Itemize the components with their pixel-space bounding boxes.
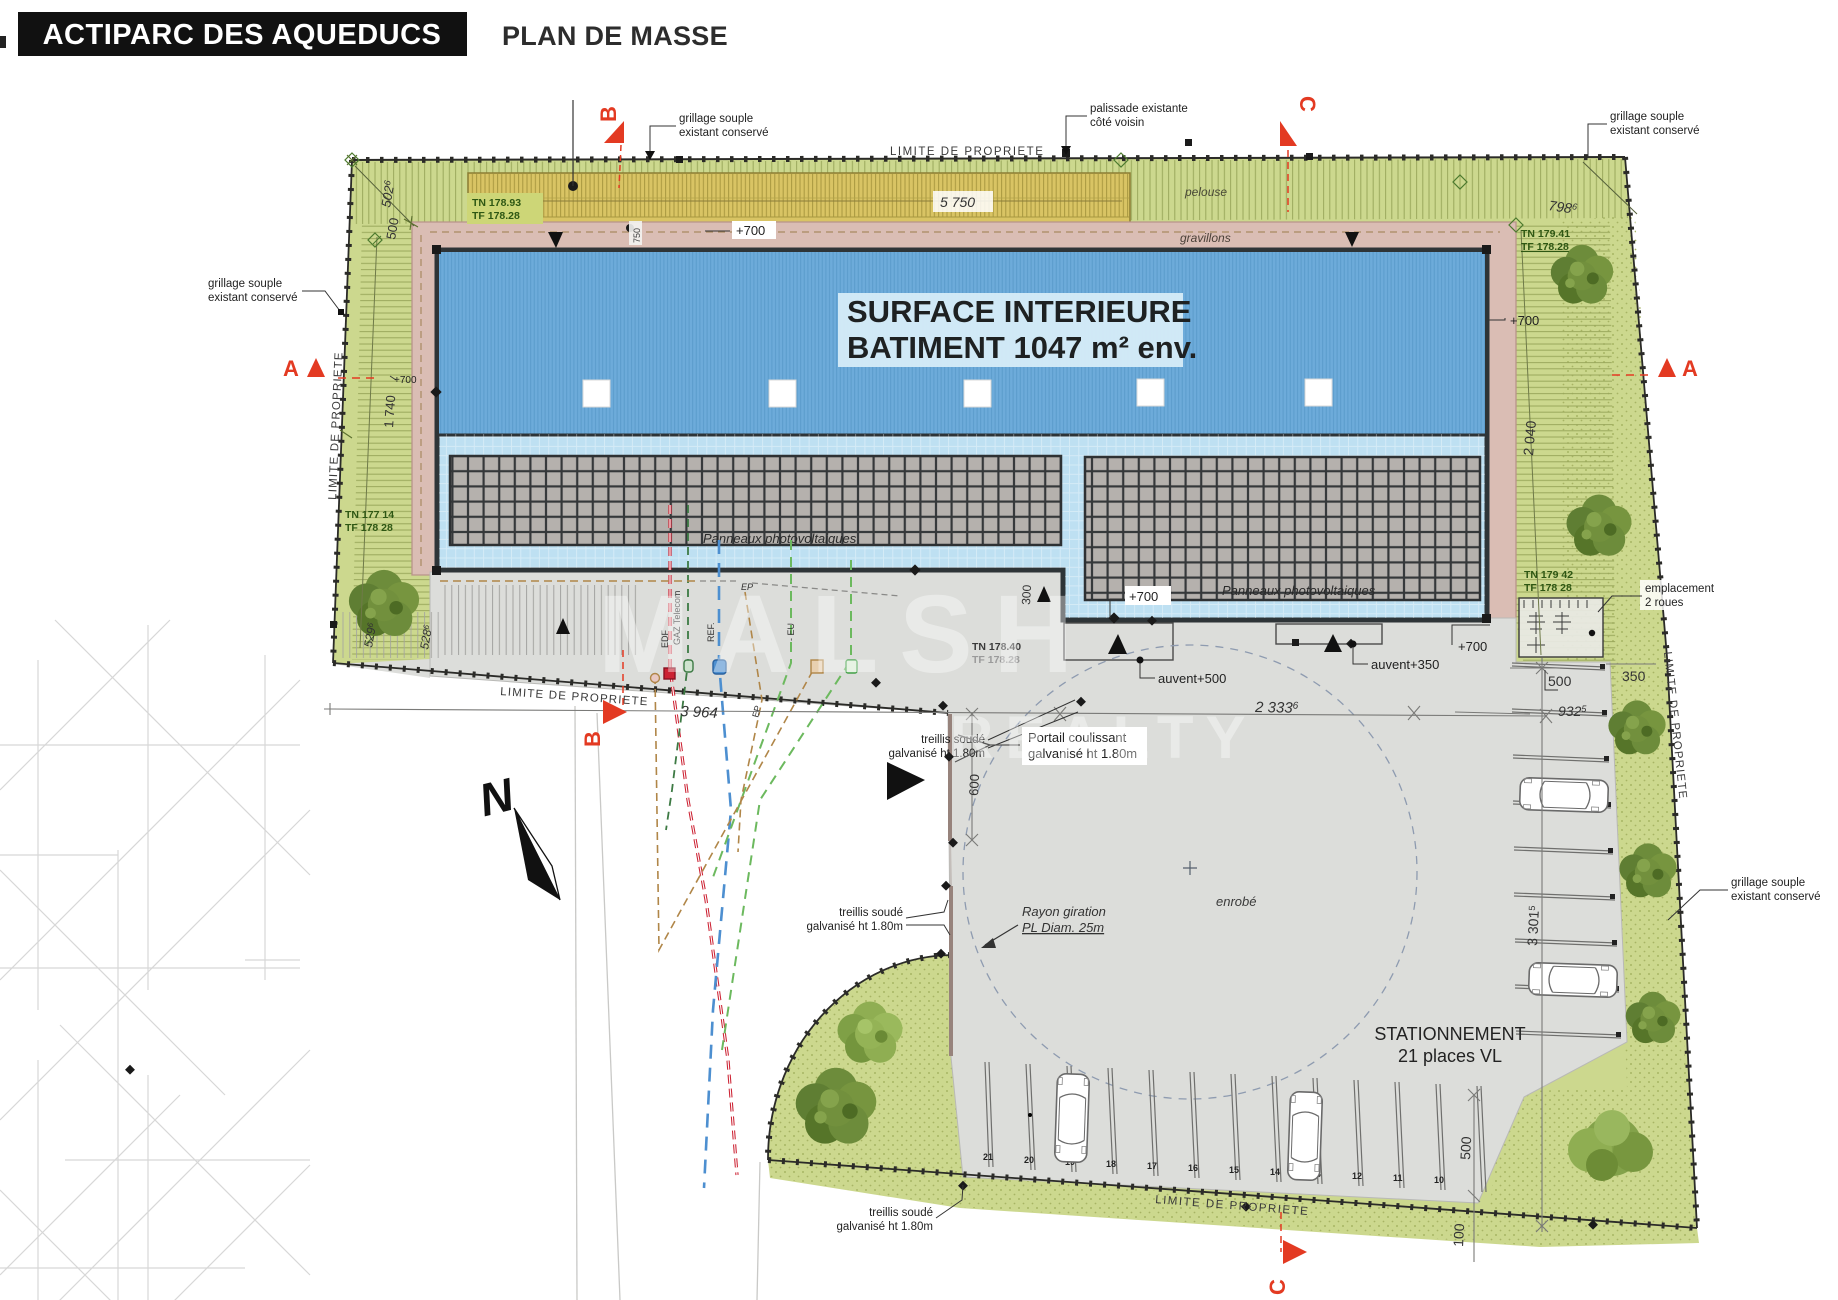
svg-text:grillage souple: grillage souple [1610, 111, 1684, 123]
svg-text:+700: +700 [1510, 313, 1539, 328]
svg-text:15: 15 [1229, 1165, 1239, 1175]
svg-text:TN 179 42: TN 179 42 [1524, 569, 1573, 581]
svg-text:Panneaux photovoltaiques: Panneaux photovoltaiques [1222, 583, 1376, 598]
svg-text:TN 177 14: TN 177 14 [345, 509, 394, 521]
svg-text:100: 100 [1450, 1223, 1467, 1247]
svg-text:C: C [1295, 96, 1320, 112]
svg-text:pelouse: pelouse [1184, 185, 1227, 199]
svg-text:14: 14 [1270, 1167, 1280, 1177]
svg-text:TN 178.93: TN 178.93 [472, 197, 521, 209]
svg-text:TF 178 28: TF 178 28 [345, 522, 393, 534]
svg-text:treillis soudé: treillis soudé [839, 907, 903, 919]
svg-text:gravillons: gravillons [1180, 231, 1231, 245]
svg-text:TF 178.28: TF 178.28 [472, 210, 520, 222]
svg-text:17: 17 [1147, 1161, 1157, 1171]
svg-text:TF 178.28: TF 178.28 [1521, 241, 1569, 253]
svg-text:C: C [1265, 1279, 1290, 1295]
svg-text:+700: +700 [394, 375, 417, 386]
svg-text:+700: +700 [1458, 639, 1487, 654]
svg-text:20: 20 [1024, 1155, 1034, 1165]
svg-text:BATIMENT 1047 m² env.: BATIMENT 1047 m² env. [847, 330, 1197, 365]
svg-text:emplacement: emplacement [1645, 583, 1715, 595]
svg-text:grillage souple: grillage souple [1731, 877, 1805, 889]
svg-text:existant conservé: existant conservé [1731, 891, 1821, 903]
svg-text:5 750: 5 750 [940, 194, 975, 210]
svg-text:500: 500 [1548, 673, 1572, 689]
svg-text:350: 350 [1622, 668, 1646, 684]
svg-text:Panneaux photovoltaiques: Panneaux photovoltaiques [703, 531, 857, 546]
svg-text:21 places VL: 21 places VL [1398, 1046, 1502, 1066]
svg-text:2 040: 2 040 [1520, 420, 1539, 457]
svg-text:LIMITE DE PROPRIETE: LIMITE DE PROPRIETE [890, 146, 1044, 158]
svg-text:2 3336: 2 3336 [1254, 699, 1299, 717]
svg-text:galvanisé ht 1.80m: galvanisé ht 1.80m [806, 921, 903, 933]
svg-text:2 roues: 2 roues [1645, 597, 1684, 609]
svg-text:galvanisé ht 1.80m: galvanisé ht 1.80m [836, 1221, 933, 1233]
svg-text:21: 21 [983, 1152, 993, 1162]
svg-text:+700: +700 [736, 223, 765, 238]
svg-text:16: 16 [1188, 1163, 1198, 1173]
svg-text:existant conservé: existant conservé [208, 292, 298, 304]
svg-text:Rayon giration: Rayon giration [1022, 904, 1106, 919]
svg-text:palissade existante: palissade existante [1090, 103, 1188, 115]
svg-text:enrobé: enrobé [1216, 894, 1256, 909]
svg-text:18: 18 [1106, 1159, 1116, 1169]
svg-text:N: N [474, 768, 520, 827]
svg-text:B: B [580, 731, 605, 747]
svg-text:PL Diam. 25m: PL Diam. 25m [1022, 920, 1104, 935]
svg-text:auvent+350: auvent+350 [1371, 657, 1439, 672]
svg-text:grillage souple: grillage souple [679, 113, 753, 125]
svg-text:3 964: 3 964 [680, 703, 718, 722]
svg-text:3 3015: 3 3015 [1524, 905, 1542, 946]
svg-text:TF 178 28: TF 178 28 [1524, 582, 1572, 594]
svg-text:STATIONNEMENT: STATIONNEMENT [1374, 1024, 1525, 1044]
svg-text:treillis soudé: treillis soudé [869, 1207, 933, 1219]
svg-text:12: 12 [1352, 1171, 1362, 1181]
svg-text:B: B [596, 106, 621, 122]
svg-text:750: 750 [632, 228, 642, 243]
svg-text:PLAN DE MASSE: PLAN DE MASSE [502, 21, 728, 51]
svg-text:côté voisin: côté voisin [1090, 117, 1144, 129]
svg-text:existant conservé: existant conservé [1610, 125, 1700, 137]
svg-text:REALTY: REALTY [950, 704, 1258, 771]
svg-text:MALSH: MALSH [598, 573, 1094, 696]
svg-text:ACTIPARC DES AQUEDUCS: ACTIPARC DES AQUEDUCS [43, 19, 442, 51]
svg-text:existant conservé: existant conservé [679, 127, 769, 139]
svg-text:A: A [283, 356, 299, 381]
svg-text:11: 11 [1393, 1173, 1403, 1183]
svg-text:+700: +700 [1129, 589, 1158, 604]
svg-text:A: A [1682, 356, 1698, 381]
svg-text:1 740: 1 740 [381, 395, 398, 429]
svg-text:auvent+500: auvent+500 [1158, 671, 1226, 686]
svg-text:grillage souple: grillage souple [208, 278, 282, 290]
svg-text:SURFACE INTERIEURE: SURFACE INTERIEURE [847, 294, 1191, 329]
svg-text:10: 10 [1434, 1175, 1444, 1185]
svg-text:500: 500 [1457, 1136, 1474, 1160]
svg-text:TN 179.41: TN 179.41 [1521, 228, 1570, 240]
svg-text:600: 600 [966, 774, 982, 796]
